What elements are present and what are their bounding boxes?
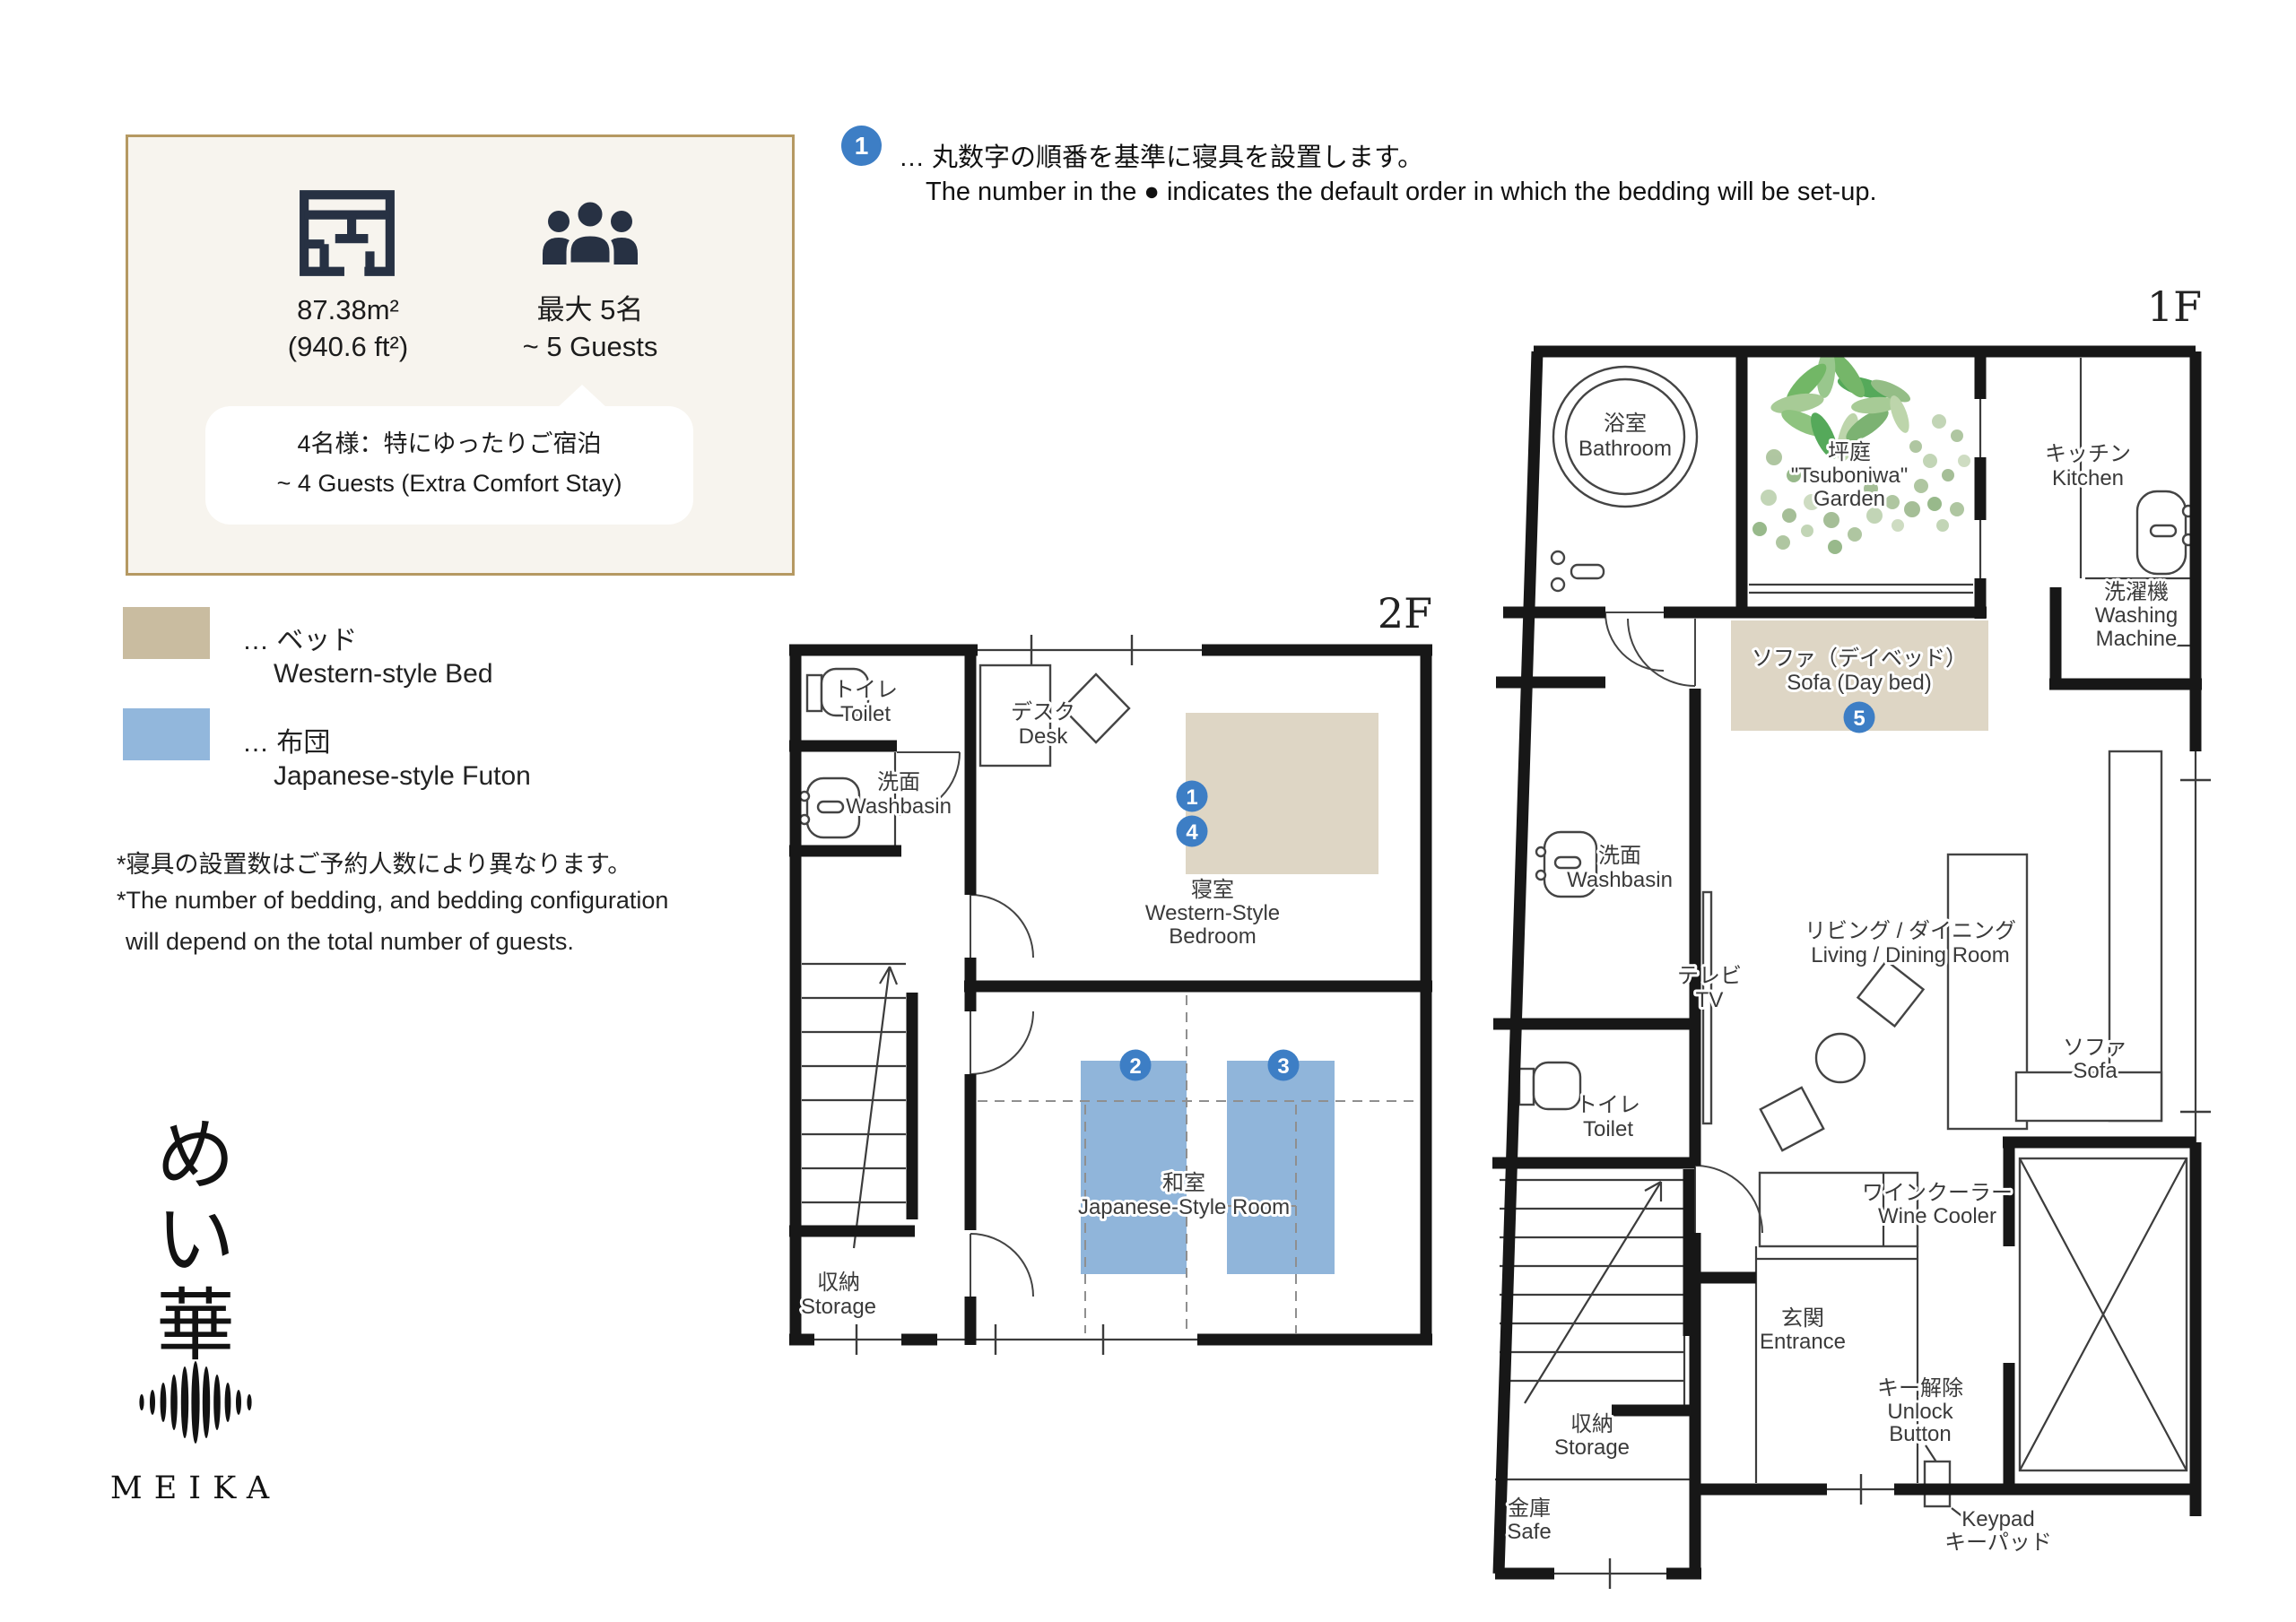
room-label-garden-en2: Garden <box>1813 487 1885 511</box>
futon-area-1 <box>1081 1061 1187 1274</box>
room-label-toilet-2f-en: Toilet <box>840 702 891 726</box>
label-daybed-en: Sofa (Day bed) <box>1787 671 1931 695</box>
room-label-storage-1f-jp: 収納 <box>1570 1412 1613 1436</box>
label-sofa-jp: ソファ <box>2063 1036 2127 1060</box>
label-sofa-en: Sofa <box>2073 1059 2118 1083</box>
room-label-living-jp: リビング / ダイニング <box>1805 919 2016 943</box>
label-daybed-jp: ソファ（デイベッド） <box>1752 646 1967 671</box>
futon-area-2 <box>1227 1061 1335 1274</box>
room-label-living-en: Living / Dining Room <box>1811 943 2009 967</box>
label-unlock-en1: Unlock <box>1887 1400 1953 1424</box>
floorplan-1f: 1F 浴室 Bathroom 坪庭 "Tsuboniwa" Garden キッチ… <box>1480 287 2215 1596</box>
room-label-kitchen-en: Kitchen <box>2052 466 2124 490</box>
room-label-washbasin-1f-en: Washbasin <box>1567 868 1673 892</box>
floorplan-icon <box>297 187 397 283</box>
room-label-washbasin-1f-jp: 洗面 <box>1598 844 1641 868</box>
bubble-line-jp: 4名様：特にゆったりご宿泊 <box>205 424 693 464</box>
room-label-japanese-room-en: Japanese-Style Room <box>1078 1195 1290 1219</box>
legend-futon-swatch <box>123 708 210 760</box>
svg-text:1: 1 <box>1186 785 1197 810</box>
room-label-washing-en1: Washing <box>2095 603 2178 628</box>
legend-bed-swatch <box>123 607 210 659</box>
property-info-card: 87.38m² (940.6 ft²) 最大 5名 ~ 5 Guests 4名様… <box>126 134 795 576</box>
legend: … ベッド Western-style Bed … 布団 Japanese-st… <box>123 607 625 840</box>
room-label-washbasin-2f-jp: 洗面 <box>877 770 920 794</box>
area-ft2: (940.6 ft²) <box>240 328 456 365</box>
kitchen-sink-icon <box>2137 491 2194 574</box>
room-label-toilet-1f-en: Toilet <box>1583 1117 1633 1141</box>
tatami-guides <box>978 995 1424 1333</box>
room-label-kitchen-jp: キッチン <box>2045 442 2131 466</box>
room-label-bedroom-en1: Western-Style <box>1145 901 1280 925</box>
bedding-note-en: The number in the ● indicates the defaul… <box>926 178 1877 207</box>
furniture-1f <box>1703 751 2187 1470</box>
room-label-washing-en2: Machine <box>2096 627 2178 651</box>
bedding-marker-3: 3 <box>1268 1050 1300 1081</box>
capacity-en: ~ 5 Guests <box>487 328 693 365</box>
sofa-icon <box>2109 751 2161 1121</box>
badge-number: 1 <box>855 132 869 160</box>
bedding-marker-4: 4 <box>1177 816 1208 847</box>
comfort-stay-bubble: 4名様：特にゆったりご宿泊 ~ 4 Guests (Extra Comfort … <box>205 406 693 525</box>
room-label-storage-1f-en: Storage <box>1554 1436 1630 1460</box>
legend-futon-en: Japanese-style Futon <box>274 761 531 792</box>
svg-text:2: 2 <box>1129 1054 1141 1079</box>
label-safe-en: Safe <box>1507 1520 1551 1544</box>
logo-kana-3: 華 <box>133 1262 258 1376</box>
room-label-entrance-en: Entrance <box>1760 1330 1846 1354</box>
floor-label-2f: 2F <box>1378 589 1432 638</box>
legend-bed-jp: … ベッド <box>242 618 357 657</box>
label-unlock-jp: キー解除 <box>1877 1376 1963 1401</box>
room-label-washing-jp: 洗濯機 <box>2104 580 2169 604</box>
label-keypad-en: Keypad <box>1961 1507 2034 1531</box>
room-label-bathroom-en: Bathroom <box>1578 437 1672 461</box>
bedding-note-jp: … 丸数字の順番を基準に寝具を設置します。 <box>899 136 1423 174</box>
footnote-jp: *寝具の設置数はご予約人数により異なります。 <box>117 845 631 880</box>
room-label-japanese-room-jp: 和室 <box>1162 1171 1205 1195</box>
guests-icon <box>532 198 648 274</box>
label-wine-cooler-jp: ワインクーラー <box>1862 1181 2013 1205</box>
capacity-jp: 最大 5名 <box>487 291 693 328</box>
bubble-tail-icon <box>557 385 607 408</box>
bedding-marker-5: 5 <box>1844 702 1875 733</box>
label-unlock-en2: Button <box>1889 1422 1951 1446</box>
bubble-line-en: ~ 4 Guests (Extra Comfort Stay) <box>205 464 693 503</box>
floor-label-1f: 1F <box>2147 287 2202 331</box>
dining-chair-icon <box>1858 961 1924 1027</box>
logo-brush-mark-icon <box>136 1361 255 1448</box>
footnote-en2: will depend on the total number of guest… <box>126 928 574 956</box>
room-label-toilet-2f-jp: トイレ <box>833 678 898 702</box>
label-safe-jp: 金庫 <box>1508 1496 1551 1521</box>
footnote-en1: *The number of bedding, and bedding conf… <box>117 887 668 915</box>
bedding-marker-1: 1 <box>1177 781 1208 812</box>
legend-bed-en: Western-style Bed <box>274 659 493 690</box>
area-m2: 87.38m² <box>240 291 456 328</box>
label-keypad-jp: キーパッド <box>1944 1531 2052 1555</box>
room-label-desk-jp: デスク <box>1011 700 1075 724</box>
bed-area-2f <box>1186 713 1378 874</box>
room-label-storage-2f-en: Storage <box>801 1295 876 1319</box>
room-label-toilet-1f-jp: トイレ <box>1576 1093 1640 1117</box>
circled-number-badge: 1 <box>841 126 882 166</box>
legend-futon-jp: … 布団 <box>242 720 330 759</box>
toilet-icon-1f <box>1519 1063 1580 1109</box>
shower-icon <box>1552 551 1604 591</box>
bedding-marker-2: 2 <box>1120 1050 1152 1081</box>
room-label-bathroom-jp: 浴室 <box>1604 412 1647 436</box>
room-label-washbasin-2f-en: Washbasin <box>846 794 952 819</box>
label-tv-en: TV <box>1696 988 1724 1012</box>
dining-chair-icon <box>1761 1088 1823 1150</box>
room-label-entrance-jp: 玄関 <box>1781 1306 1824 1331</box>
room-label-bedroom-en2: Bedroom <box>1169 924 1256 949</box>
label-tv-jp: テレビ <box>1677 964 1742 988</box>
side-table-icon <box>1816 1034 1865 1082</box>
svg-text:3: 3 <box>1277 1054 1289 1079</box>
logo-latin: MEIKA <box>79 1470 312 1506</box>
room-label-bedroom-jp: 寝室 <box>1191 878 1234 902</box>
svg-text:5: 5 <box>1853 707 1865 731</box>
room-label-garden-en1: "Tsuboniwa" <box>1791 464 1908 488</box>
room-label-garden-jp: 坪庭 <box>1828 440 1871 464</box>
room-label-storage-2f-jp: 収納 <box>817 1271 860 1295</box>
label-wine-cooler-en: Wine Cooler <box>1878 1204 1996 1228</box>
svg-text:4: 4 <box>1186 820 1198 845</box>
room-label-desk-en: Desk <box>1019 724 1069 749</box>
floorplan-2f: 2F トイレ Toilet 洗面 Washbasin デスク Desk 寝室 W… <box>771 583 1453 1363</box>
